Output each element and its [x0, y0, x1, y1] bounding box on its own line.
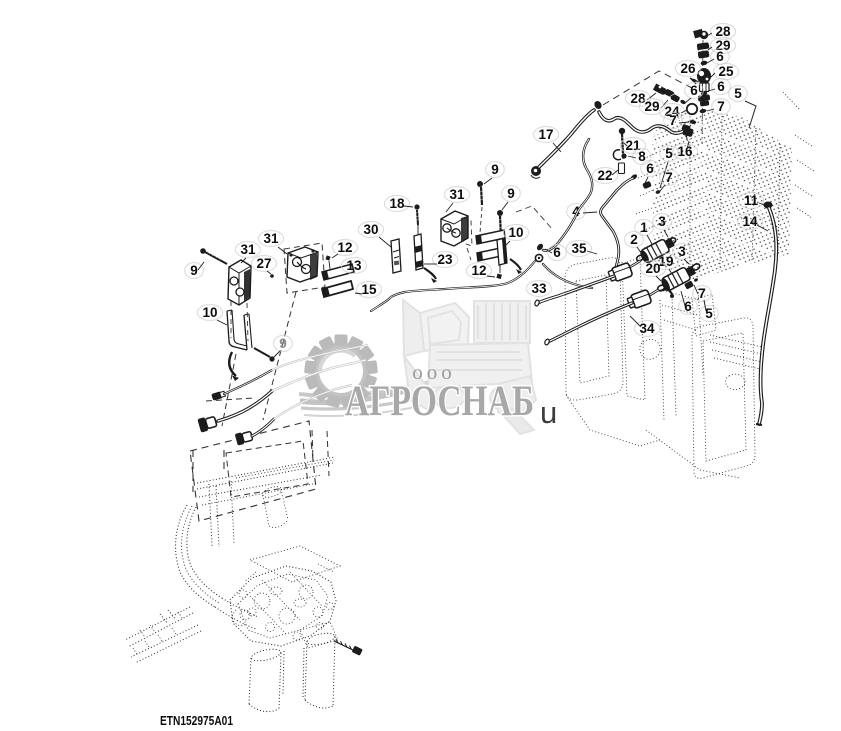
svg-text:10: 10 — [202, 305, 217, 320]
svg-text:3: 3 — [678, 244, 686, 259]
svg-text:АГРОСНАБ: АГРОСНАБ — [345, 378, 534, 425]
svg-text:6: 6 — [716, 49, 724, 64]
svg-text:7: 7 — [717, 99, 725, 114]
svg-text:30: 30 — [363, 222, 378, 237]
svg-text:31: 31 — [449, 187, 465, 202]
svg-text:ETN152975A01: ETN152975A01 — [160, 713, 233, 728]
svg-text:6: 6 — [690, 83, 698, 98]
svg-text:6: 6 — [684, 299, 692, 314]
svg-text:1: 1 — [640, 220, 648, 235]
svg-text:5: 5 — [665, 146, 673, 161]
svg-text:9: 9 — [190, 263, 198, 278]
svg-text:13: 13 — [346, 258, 362, 273]
svg-text:u: u — [540, 395, 557, 430]
svg-text:3: 3 — [658, 214, 666, 229]
svg-text:26: 26 — [680, 61, 696, 76]
svg-text:34: 34 — [639, 321, 655, 336]
svg-text:6: 6 — [646, 161, 654, 176]
svg-text:11: 11 — [744, 193, 759, 208]
svg-text:31: 31 — [240, 242, 256, 257]
svg-text:7: 7 — [669, 113, 677, 128]
svg-text:23: 23 — [437, 252, 453, 267]
svg-text:22: 22 — [597, 168, 612, 183]
svg-text:19: 19 — [658, 254, 673, 269]
svg-text:28: 28 — [715, 24, 731, 39]
svg-text:12: 12 — [337, 240, 352, 255]
svg-text:25: 25 — [718, 64, 734, 79]
svg-text:9: 9 — [491, 162, 499, 177]
svg-text:12: 12 — [471, 263, 486, 278]
svg-text:16: 16 — [677, 144, 693, 159]
svg-text:27: 27 — [256, 256, 271, 271]
svg-text:6: 6 — [553, 245, 561, 260]
svg-text:31: 31 — [263, 231, 279, 246]
svg-text:5: 5 — [734, 86, 742, 101]
svg-text:15: 15 — [361, 282, 377, 297]
svg-text:5: 5 — [705, 306, 713, 321]
svg-text:9: 9 — [507, 186, 515, 201]
svg-text:35: 35 — [571, 241, 587, 256]
svg-text:18: 18 — [389, 196, 405, 211]
svg-text:17: 17 — [538, 127, 553, 142]
svg-text:14: 14 — [742, 214, 758, 229]
svg-text:9: 9 — [279, 336, 287, 351]
svg-text:29: 29 — [644, 99, 659, 114]
svg-text:6: 6 — [717, 79, 725, 94]
svg-text:10: 10 — [508, 225, 523, 240]
svg-text:20: 20 — [645, 261, 660, 276]
svg-text:7: 7 — [698, 286, 706, 301]
svg-text:2: 2 — [630, 232, 638, 247]
svg-text:7: 7 — [665, 170, 673, 185]
svg-text:33: 33 — [531, 281, 547, 296]
